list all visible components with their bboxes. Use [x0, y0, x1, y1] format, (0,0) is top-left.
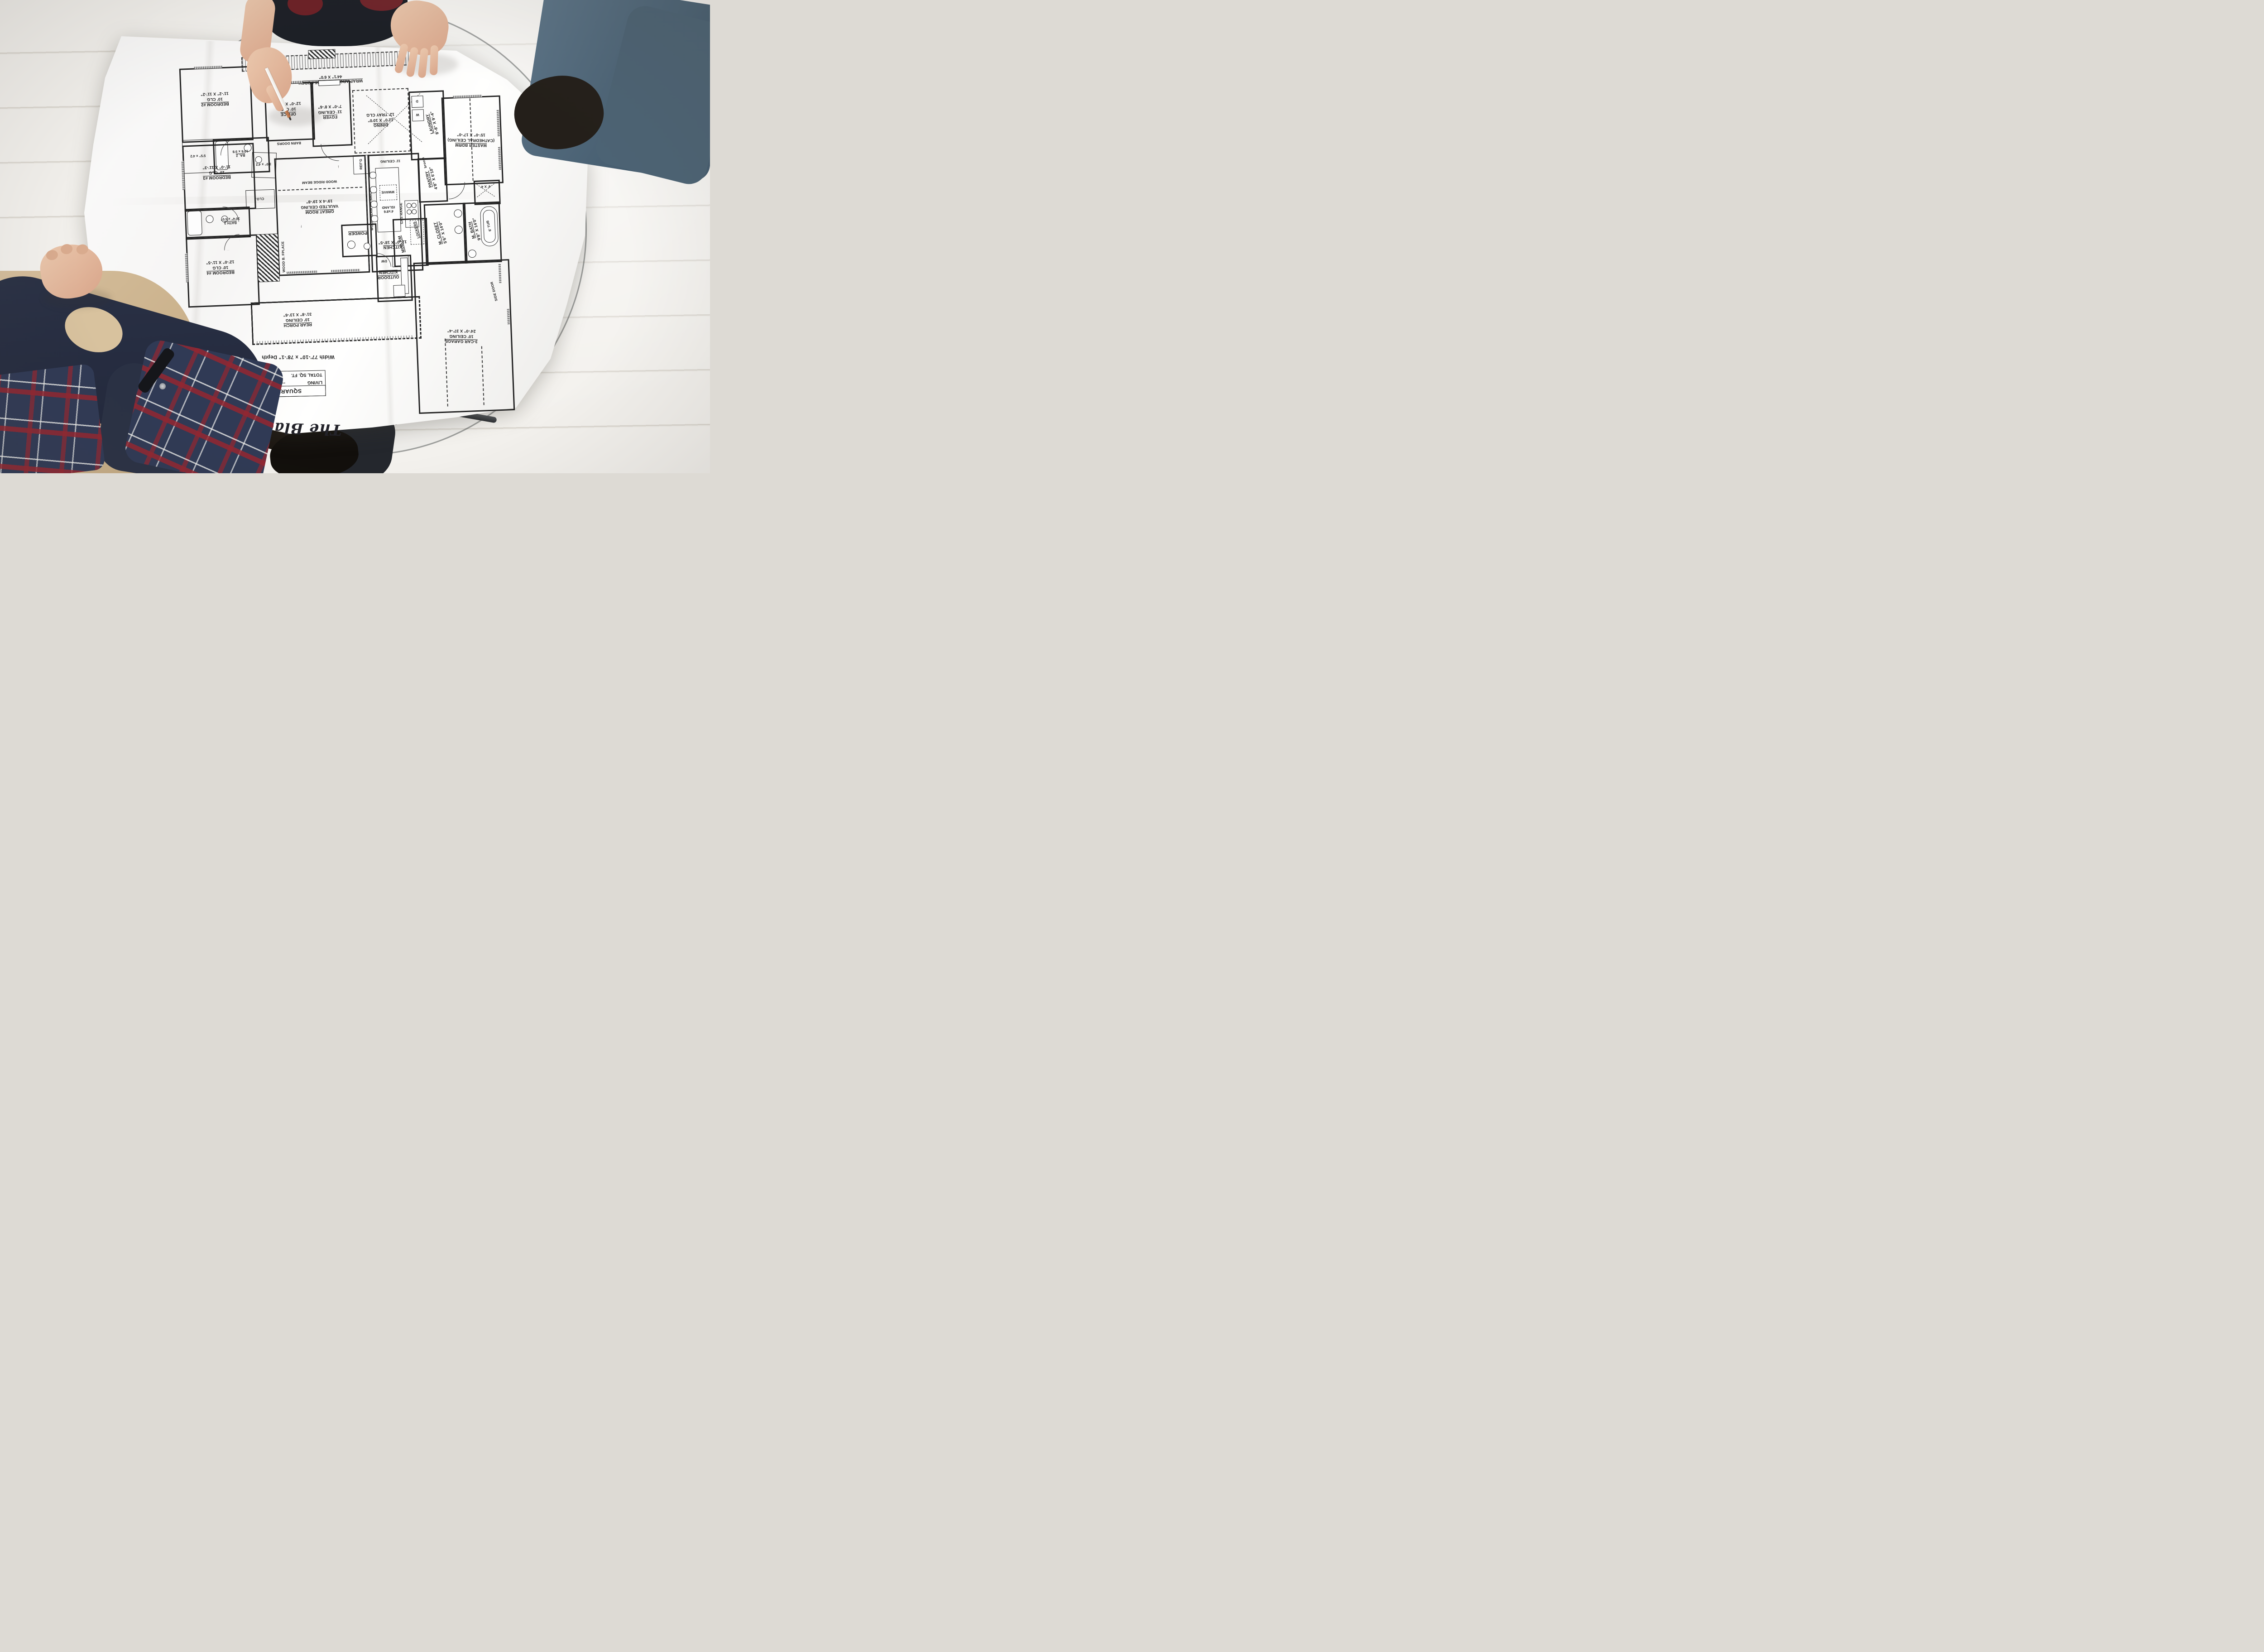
photo-scene: WRAP AROUND FRONT PORCH 44'1" X 6'0" BED… — [0, 0, 710, 473]
vignette — [0, 0, 710, 473]
